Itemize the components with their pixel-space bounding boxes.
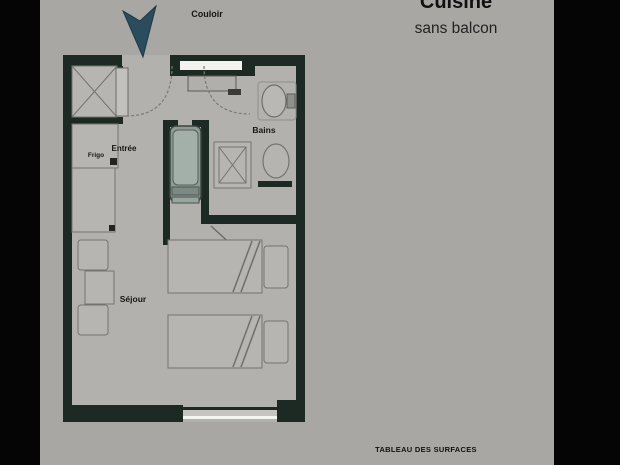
apartment-type-subtitle: sans balcon — [415, 20, 498, 37]
bed-1 — [168, 240, 288, 293]
apartment-type-title: Cuisine — [420, 0, 492, 13]
closet — [72, 66, 117, 117]
washbasin — [258, 82, 296, 120]
floor-plan-page: Couloir Entrée Frigo Bains Séjour Cuisin… — [0, 0, 620, 465]
label-living-room: Séjour — [120, 294, 147, 304]
label-fridge: Frigo — [88, 152, 104, 159]
left-counter — [72, 168, 115, 232]
shower — [214, 142, 251, 188]
bed-2 — [168, 315, 288, 368]
bathtub — [170, 126, 201, 203]
floor-plan-drawing: Couloir Entrée Frigo Bains Séjour Cuisin… — [0, 0, 620, 465]
surface-table-caption: TABLEAU DES SURFACES — [375, 445, 477, 454]
label-bathroom: Bains — [252, 125, 275, 135]
label-entrance: Entrée — [112, 144, 137, 153]
window — [183, 407, 277, 419]
label-corridor: Couloir — [191, 9, 223, 19]
